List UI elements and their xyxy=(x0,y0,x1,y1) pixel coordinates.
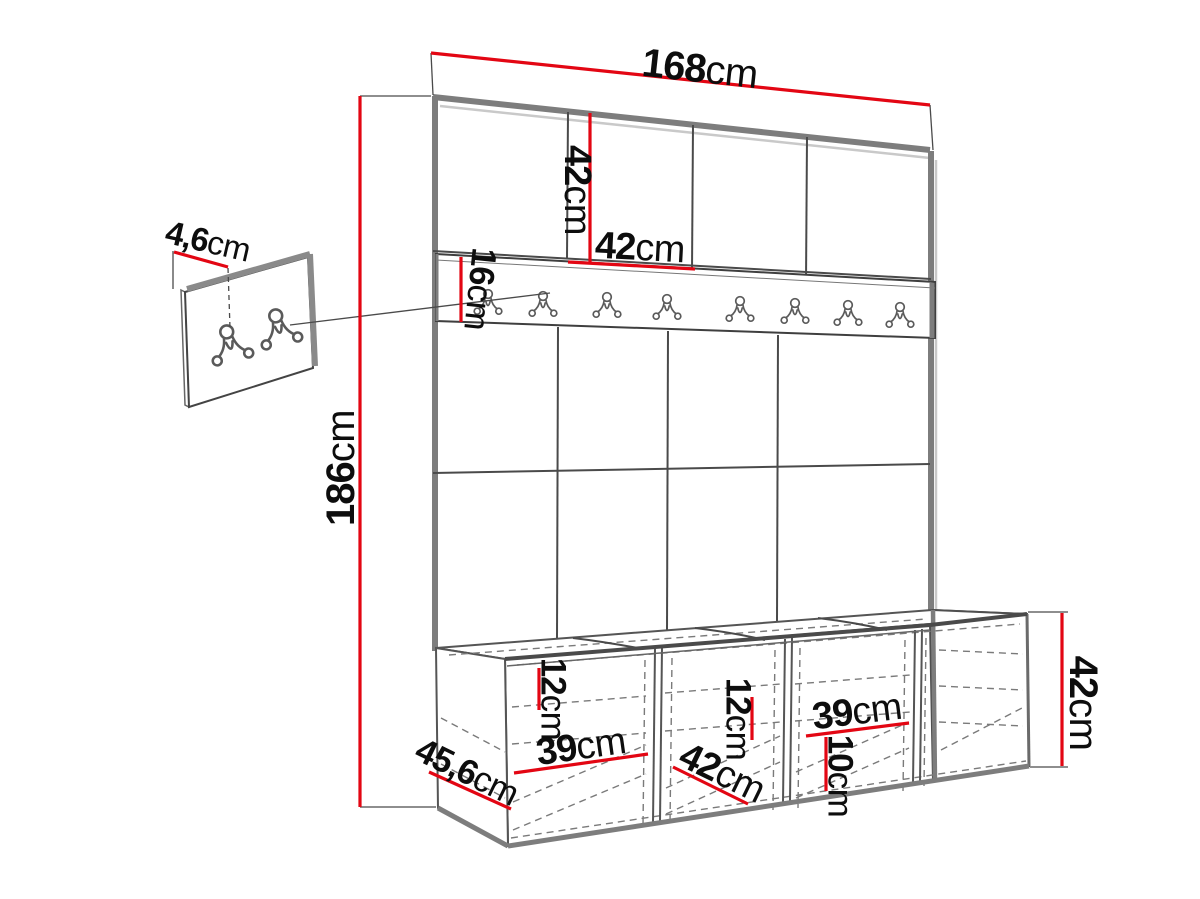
dim-unit: cm xyxy=(456,283,500,332)
dim-value: 168 xyxy=(640,41,708,92)
dim-unit: cm xyxy=(703,48,760,97)
dim-value: 12 xyxy=(719,678,758,715)
dim-unit: cm xyxy=(719,715,758,761)
dim-unit: cm xyxy=(850,686,904,734)
dim-label-bench-mid-gap: 12cm xyxy=(721,678,756,761)
dim-value: 42 xyxy=(1061,656,1105,699)
dim-label-bench-plinth-height: 10cm xyxy=(823,735,858,818)
dim-unit: cm xyxy=(634,227,686,272)
dim-value: 16 xyxy=(461,246,504,287)
wall-panel xyxy=(433,96,936,651)
dim-label-upper-panel-height: 42cm xyxy=(558,145,596,235)
furniture-dimension-diagram: 168cm 42cm 42cm 16cm 186cm 4,6cm 12cm 39… xyxy=(0,0,1200,899)
dim-value: 10 xyxy=(821,735,860,772)
dim-value: 42 xyxy=(594,225,636,269)
dim-unit: cm xyxy=(319,410,363,462)
dim-value: 12 xyxy=(534,658,573,695)
dim-unit: cm xyxy=(1061,698,1105,750)
dim-value: 42 xyxy=(556,145,598,185)
dim-label-bench-height: 42cm xyxy=(1063,656,1103,751)
dim-unit: cm xyxy=(821,772,860,818)
dim-label-rail-height: 16cm xyxy=(458,246,501,332)
small-wall-panel xyxy=(181,254,315,407)
dim-value: 39 xyxy=(810,692,855,739)
dim-label-panel-width: 42cm xyxy=(594,227,686,270)
dim-label-total-height: 186cm xyxy=(321,410,361,526)
dim-unit: cm xyxy=(556,185,598,235)
dim-value: 186 xyxy=(319,462,363,526)
dim-unit: cm xyxy=(573,720,628,769)
dim-label-bench-inner-width-2: 39cm xyxy=(810,688,904,737)
dim-value: 39 xyxy=(534,727,580,774)
